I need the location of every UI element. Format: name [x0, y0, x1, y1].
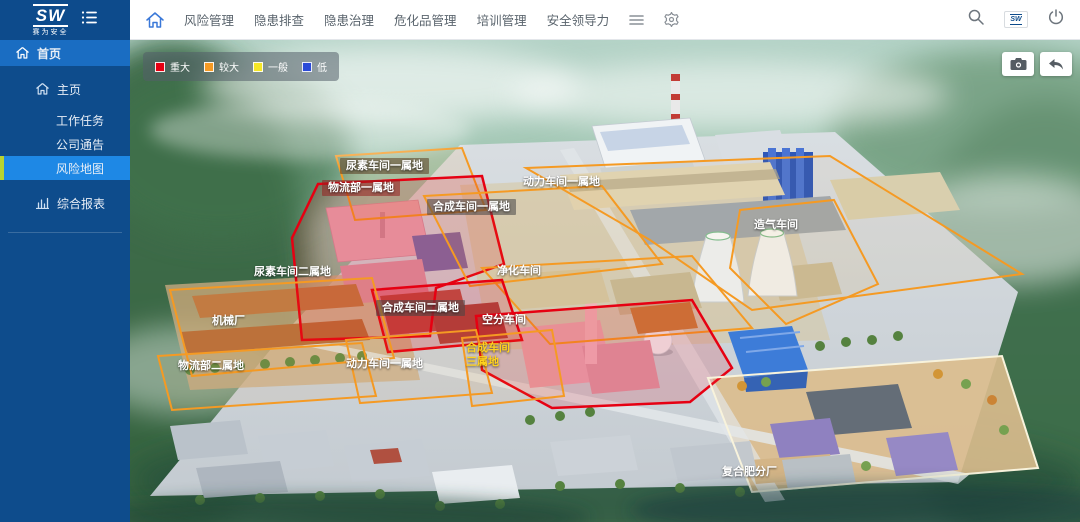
camera-icon [1010, 57, 1027, 71]
legend-item-major: 重大 [155, 59, 190, 74]
brand-logo[interactable]: SW 赛为安全 [0, 0, 130, 40]
top-navigation: 风险管理 隐患排查 隐患治理 危化品管理 培训管理 安全领导力 [130, 0, 968, 39]
nav-item-risk-management[interactable]: 风险管理 [184, 10, 234, 29]
zone-label-hecheng-2[interactable]: 合成车间二属地 [376, 300, 465, 316]
brand-logo-subtext: 赛为安全 [33, 29, 69, 36]
zone-label-hecheng-3[interactable]: 合成车间 三属地 [466, 341, 510, 370]
topbar-right-actions: SW [968, 0, 1080, 39]
nav-item-training-management[interactable]: 培训管理 [477, 10, 527, 29]
legend-item-low: 低 [302, 59, 327, 74]
legend-swatch-low [302, 62, 312, 72]
sidebar-item-label: 公司通告 [56, 136, 104, 153]
zone-label-niaosu-2[interactable]: 尿素车间二属地 [254, 265, 331, 279]
plant-3d-scene[interactable] [130, 40, 1080, 522]
brand-logo-text: SW [33, 4, 68, 27]
zone-label-kongfen[interactable]: 空分车间 [482, 313, 526, 327]
sidebar-item-company-notice[interactable]: 公司通告 [0, 132, 130, 156]
nav-item-safety-leadership[interactable]: 安全领导力 [547, 10, 610, 29]
legend-item-high: 较大 [204, 59, 239, 74]
home-icon[interactable] [146, 12, 164, 28]
risk-level-legend: 重大 较大 一般 低 [143, 52, 339, 81]
collapse-menu-icon[interactable] [81, 10, 98, 30]
legend-swatch-major [155, 62, 165, 72]
zone-label-wuliu-2[interactable]: 物流部二属地 [178, 359, 244, 373]
sidebar-item-label: 风险地图 [56, 160, 104, 177]
sidebar-item-work-tasks[interactable]: 工作任务 [0, 108, 130, 132]
back-arrow-icon [1048, 57, 1064, 71]
sidebar-item-label: 工作任务 [56, 112, 104, 129]
nav-item-hazard-inspection[interactable]: 隐患排查 [254, 10, 304, 29]
zone-label-dongli-top[interactable]: 动力车间一属地 [523, 175, 600, 189]
sidebar-item-label: 主页 [57, 81, 81, 98]
risk-map-canvas[interactable]: 重大 较大 一般 低 [130, 40, 1080, 522]
sidebar-divider [8, 232, 122, 233]
home-icon [16, 47, 29, 59]
sidebar-item-home[interactable]: 首页 [0, 40, 130, 66]
legend-item-general: 一般 [253, 59, 288, 74]
brand-logo-mark: SW 赛为安全 [33, 4, 69, 36]
sidebar-item-reports[interactable]: 综合报表 [0, 188, 130, 218]
legend-swatch-general [253, 62, 263, 72]
zone-label-jinghua[interactable]: 净化车间 [497, 264, 541, 278]
user-avatar[interactable]: SW [1004, 11, 1028, 28]
sidebar-item-label: 首页 [37, 45, 61, 62]
back-button[interactable] [1040, 52, 1072, 76]
zone-label-niaosu-1[interactable]: 尿素车间一属地 [340, 158, 429, 174]
nav-item-hazchem-management[interactable]: 危化品管理 [394, 10, 457, 29]
home-outline-icon [36, 83, 49, 95]
nav-item-hazard-treatment[interactable]: 隐患治理 [324, 10, 374, 29]
sidebar-item-main[interactable]: 主页 [0, 74, 130, 104]
legend-swatch-high [204, 62, 214, 72]
screenshot-camera-button[interactable] [1002, 52, 1034, 76]
app-window: SW 赛为安全 风险管理 隐患排查 隐患治理 危化品管理 培训管理 安全领导力 [0, 0, 1080, 522]
sidebar-item-risk-map[interactable]: 风险地图 [0, 156, 130, 180]
sidebar: 首页 主页 工作任务 公司通告 风险地图 综合报表 [0, 40, 130, 522]
zone-label-dongli-bottom[interactable]: 动力车间一属地 [346, 357, 423, 371]
search-icon[interactable] [968, 9, 984, 30]
topbar: SW 赛为安全 风险管理 隐患排查 隐患治理 危化品管理 培训管理 安全领导力 [0, 0, 1080, 40]
settings-gear-icon[interactable] [664, 12, 679, 27]
zone-label-fuhefei[interactable]: 复合肥分厂 [722, 465, 777, 479]
bar-chart-icon [36, 197, 49, 209]
zone-label-zaoqi[interactable]: 造气车间 [754, 218, 798, 232]
more-menu-icon[interactable] [629, 14, 644, 26]
zone-label-jixie[interactable]: 机械厂 [212, 314, 245, 328]
zone-label-hecheng-1[interactable]: 合成车间一属地 [427, 199, 516, 215]
zone-label-wuliu-1[interactable]: 物流部一属地 [322, 180, 400, 196]
power-logout-icon[interactable] [1048, 9, 1064, 30]
map-toolbar [1002, 52, 1072, 76]
sidebar-item-label: 综合报表 [57, 195, 105, 212]
